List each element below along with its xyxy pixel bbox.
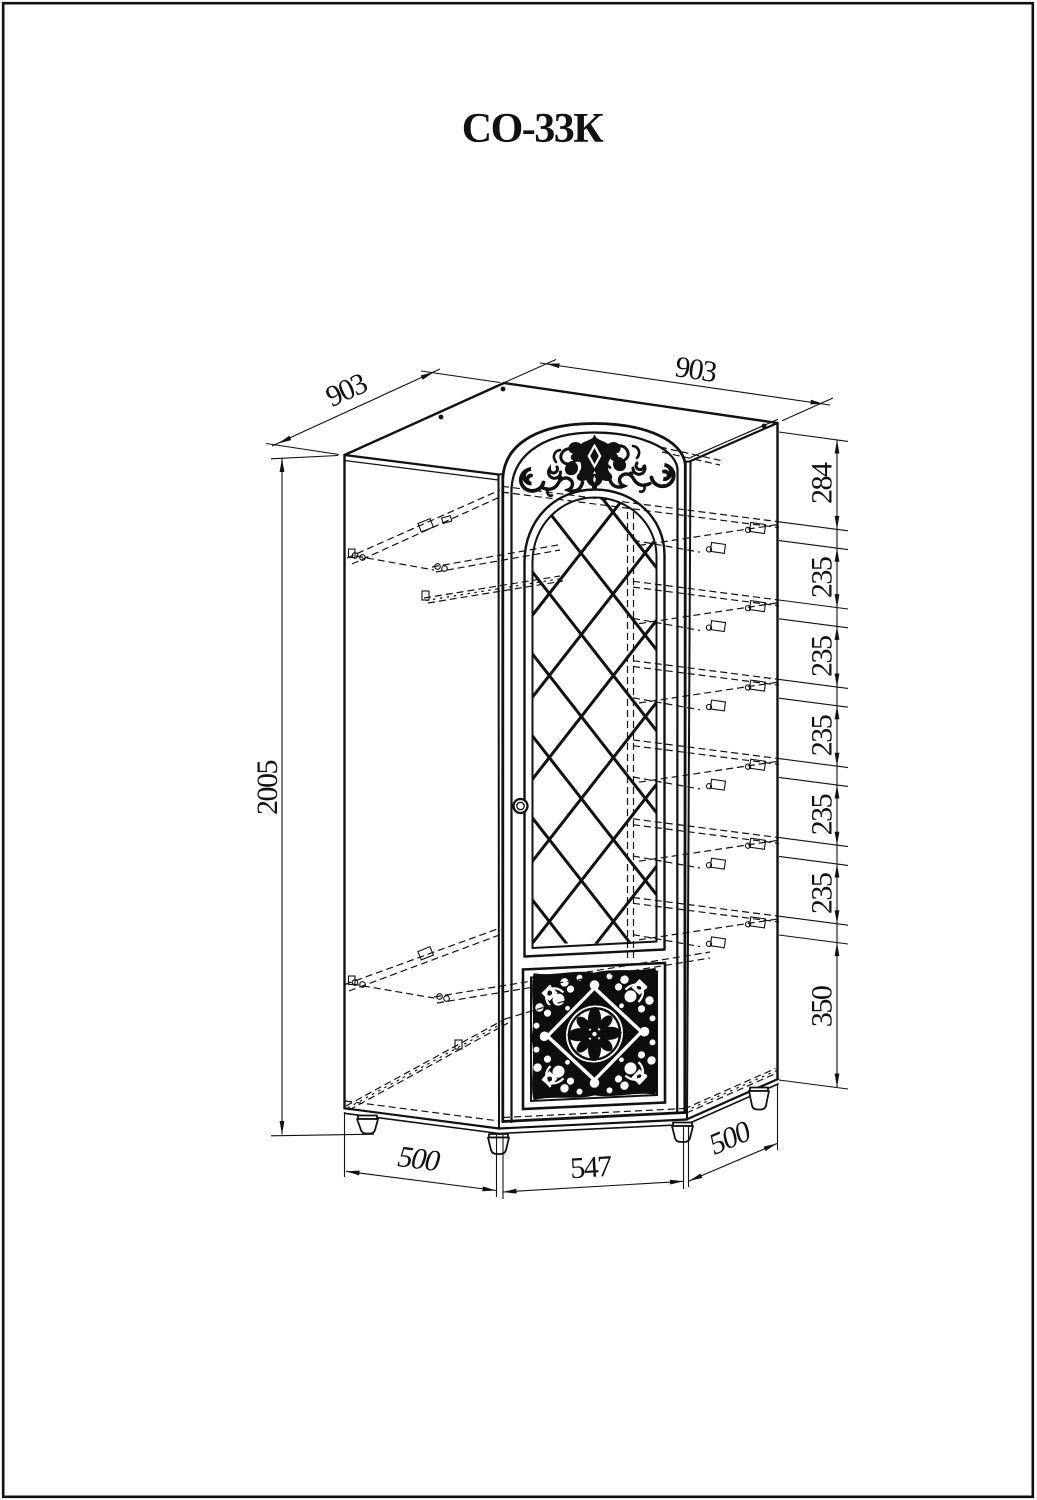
svg-text:СО-33К: СО-33К [462,106,604,152]
svg-text:547: 547 [569,1150,613,1185]
svg-text:235: 235 [806,557,839,598]
svg-text:235: 235 [806,794,839,835]
svg-text:235: 235 [806,715,839,756]
svg-text:2005: 2005 [251,761,284,816]
svg-text:350: 350 [806,986,839,1027]
svg-text:235: 235 [806,636,839,677]
svg-text:235: 235 [806,873,839,914]
svg-text:903: 903 [673,350,718,389]
svg-text:284: 284 [806,462,839,504]
svg-text:500: 500 [396,1140,442,1178]
